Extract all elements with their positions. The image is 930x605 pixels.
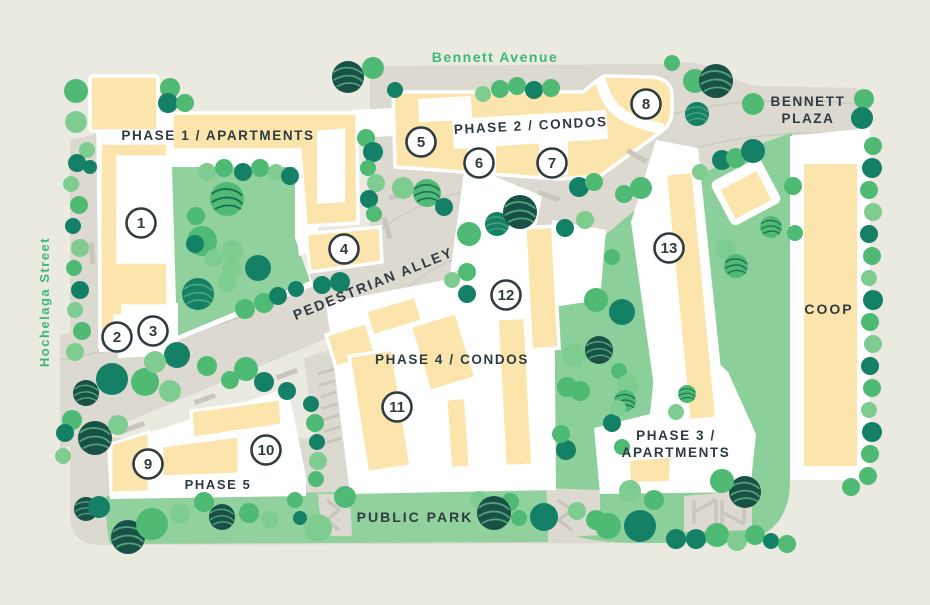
svg-text:9: 9 xyxy=(144,456,152,473)
svg-text:BENNETT: BENNETT xyxy=(771,94,846,109)
svg-text:PHASE 1 / APARTMENTS: PHASE 1 / APARTMENTS xyxy=(121,128,314,143)
svg-text:3: 3 xyxy=(149,323,157,340)
svg-text:11: 11 xyxy=(389,399,405,416)
svg-text:6: 6 xyxy=(475,155,483,172)
svg-text:PHASE 4 / CONDOS: PHASE 4 / CONDOS xyxy=(375,352,529,367)
svg-text:Hochelaga Street: Hochelaga Street xyxy=(37,237,52,367)
svg-text:12: 12 xyxy=(498,287,515,304)
svg-text:PHASE 5: PHASE 5 xyxy=(185,477,252,492)
svg-text:8: 8 xyxy=(642,96,650,113)
svg-text:7: 7 xyxy=(548,155,556,172)
svg-text:13: 13 xyxy=(661,240,678,257)
svg-text:COOP: COOP xyxy=(804,301,853,317)
svg-text:1: 1 xyxy=(137,215,145,232)
svg-text:APARTMENTS: APARTMENTS xyxy=(622,445,731,460)
svg-text:4: 4 xyxy=(340,241,349,258)
svg-text:PHASE 3 /: PHASE 3 / xyxy=(636,428,716,443)
svg-text:10: 10 xyxy=(258,442,275,459)
svg-text:PUBLIC PARK: PUBLIC PARK xyxy=(357,509,474,525)
svg-text:5: 5 xyxy=(417,134,425,151)
svg-text:2: 2 xyxy=(113,329,121,346)
svg-text:PLAZA: PLAZA xyxy=(782,111,835,126)
svg-text:Bennett Avenue: Bennett Avenue xyxy=(432,49,559,65)
